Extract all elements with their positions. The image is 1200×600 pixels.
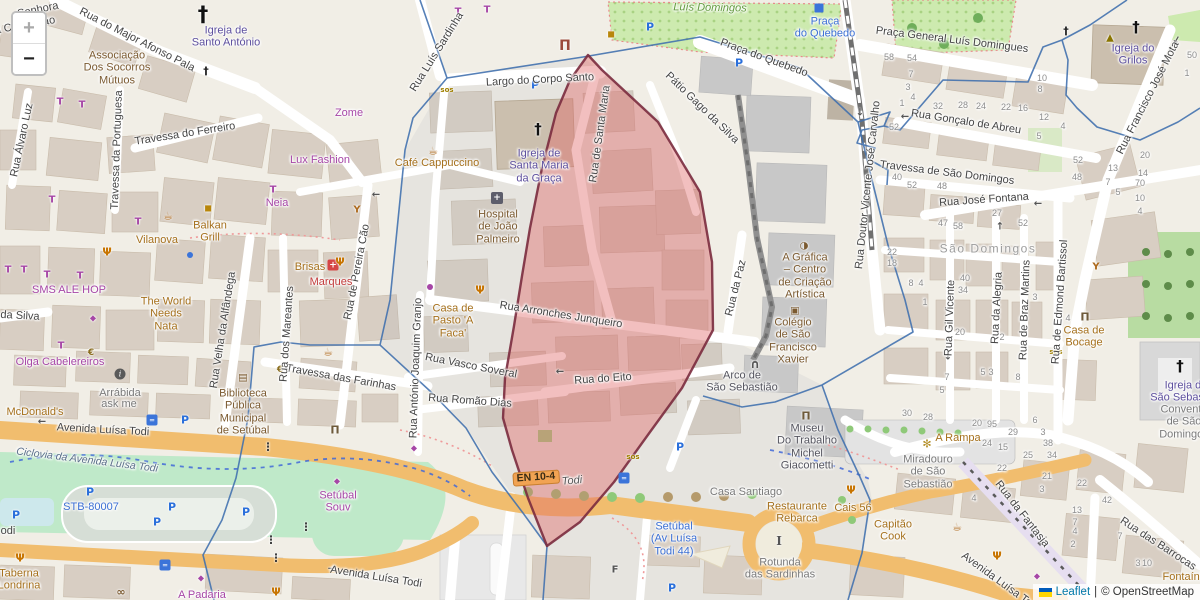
map-render bbox=[0, 0, 1200, 600]
attribution-separator: | bbox=[1094, 586, 1097, 598]
zoom-control: + − bbox=[11, 11, 47, 76]
zoom-in-button[interactable]: + bbox=[13, 13, 45, 44]
ukraine-flag-icon bbox=[1039, 588, 1052, 597]
map-canvas[interactable]: ††††††ΠΠΠΠ∞I∩▣◑▤++✻☕☕☕☕ΨΨΨΨΨΨΨYY■■TTTTTT… bbox=[0, 0, 1200, 600]
attribution-bar: Leaflet | © OpenStreetMap bbox=[1033, 584, 1200, 600]
zoom-out-button[interactable]: − bbox=[13, 44, 45, 74]
openstreetmap-link[interactable]: © OpenStreetMap bbox=[1101, 586, 1194, 598]
leaflet-link[interactable]: Leaflet bbox=[1056, 586, 1091, 598]
